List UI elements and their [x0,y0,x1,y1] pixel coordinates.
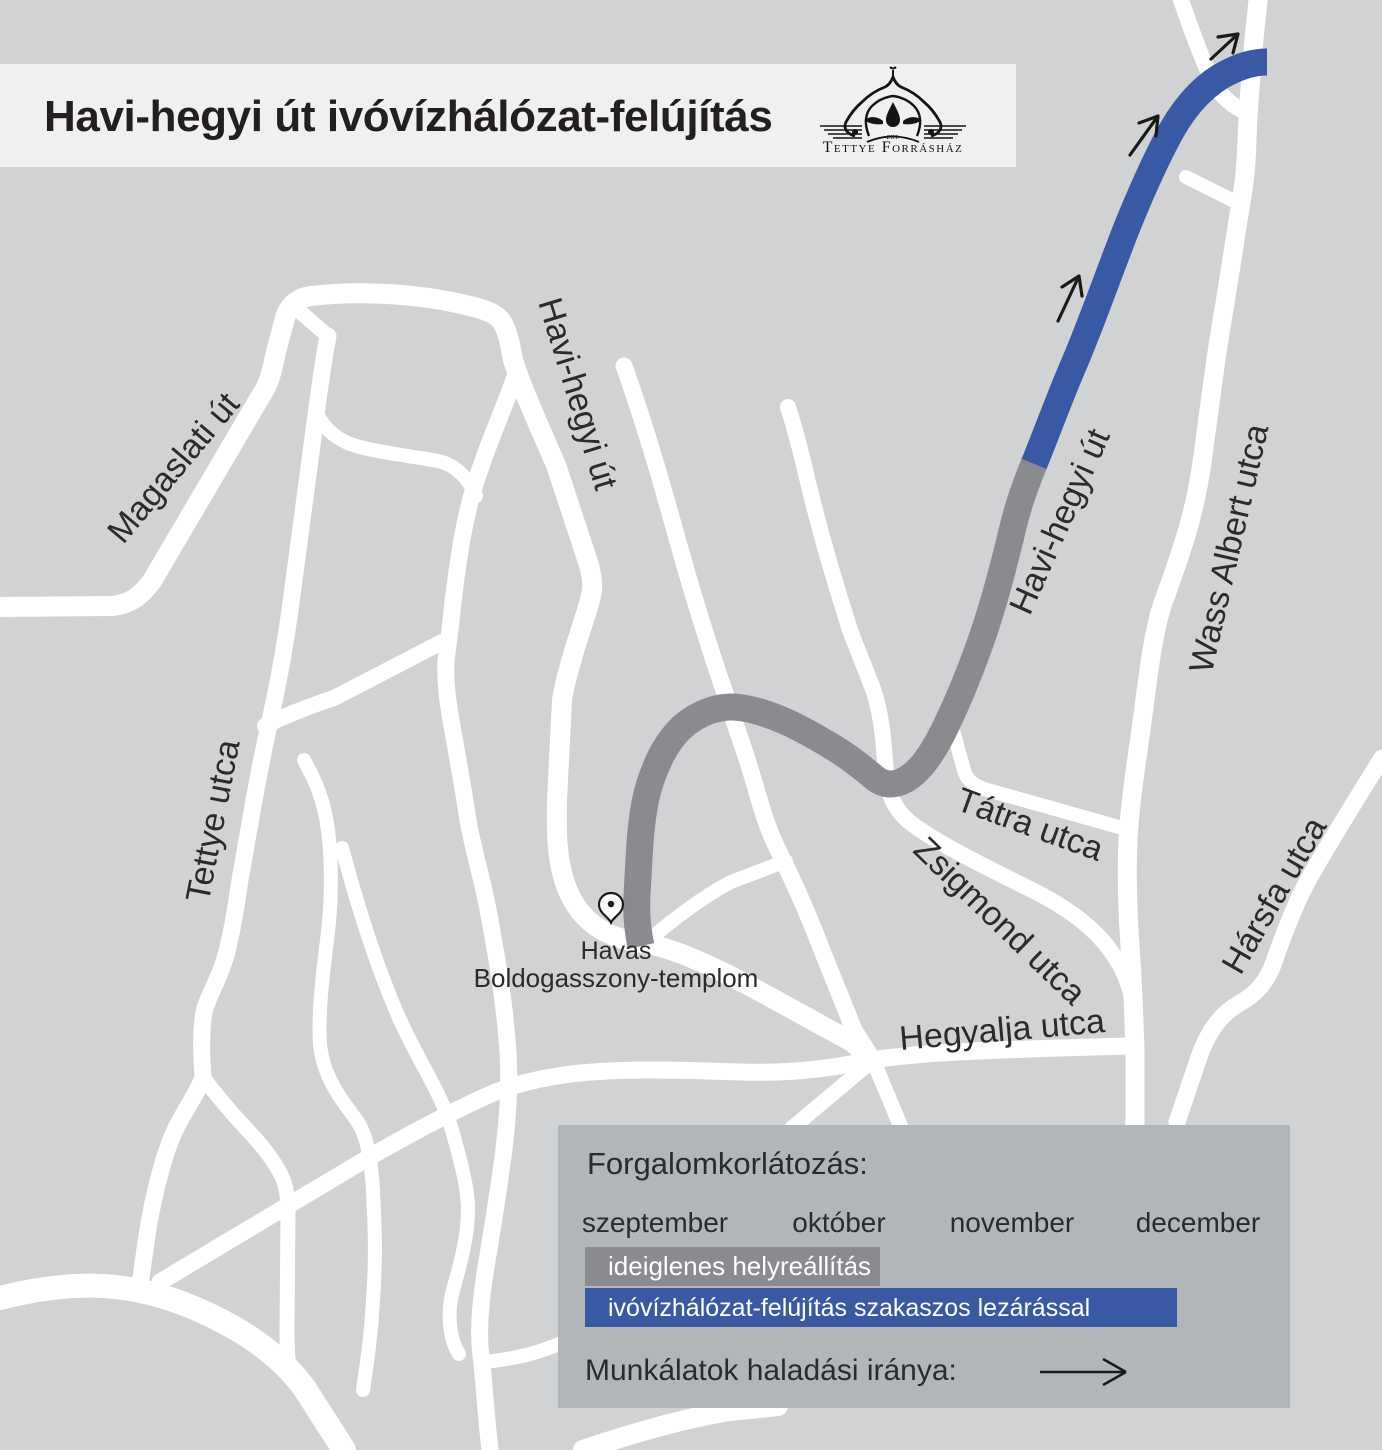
svg-text:ideiglenes helyreállítás: ideiglenes helyreállítás [608,1251,871,1281]
svg-text:Havi-hegyi út ivóvízhálózat-fe: Havi-hegyi út ivóvízhálózat-felújítás [44,92,772,141]
svg-text:október: október [792,1207,885,1238]
svg-text:december: december [1136,1207,1261,1238]
svg-text:ivóvízhálózat-felújítás szakas: ivóvízhálózat-felújítás szakaszos lezárá… [608,1294,1090,1322]
svg-text:Boldogasszony-templom: Boldogasszony-templom [474,963,759,993]
svg-text:Munkálatok haladási iránya:: Munkálatok haladási iránya: [585,1354,957,1387]
svg-text:Havas: Havas [581,937,652,965]
svg-text:Forgalomkorlátozás:: Forgalomkorlátozás: [587,1146,868,1181]
svg-text:november: november [950,1207,1075,1238]
svg-text:szeptember: szeptember [582,1207,728,1238]
svg-text:Tettye Forrásház: Tettye Forrásház [823,139,964,156]
